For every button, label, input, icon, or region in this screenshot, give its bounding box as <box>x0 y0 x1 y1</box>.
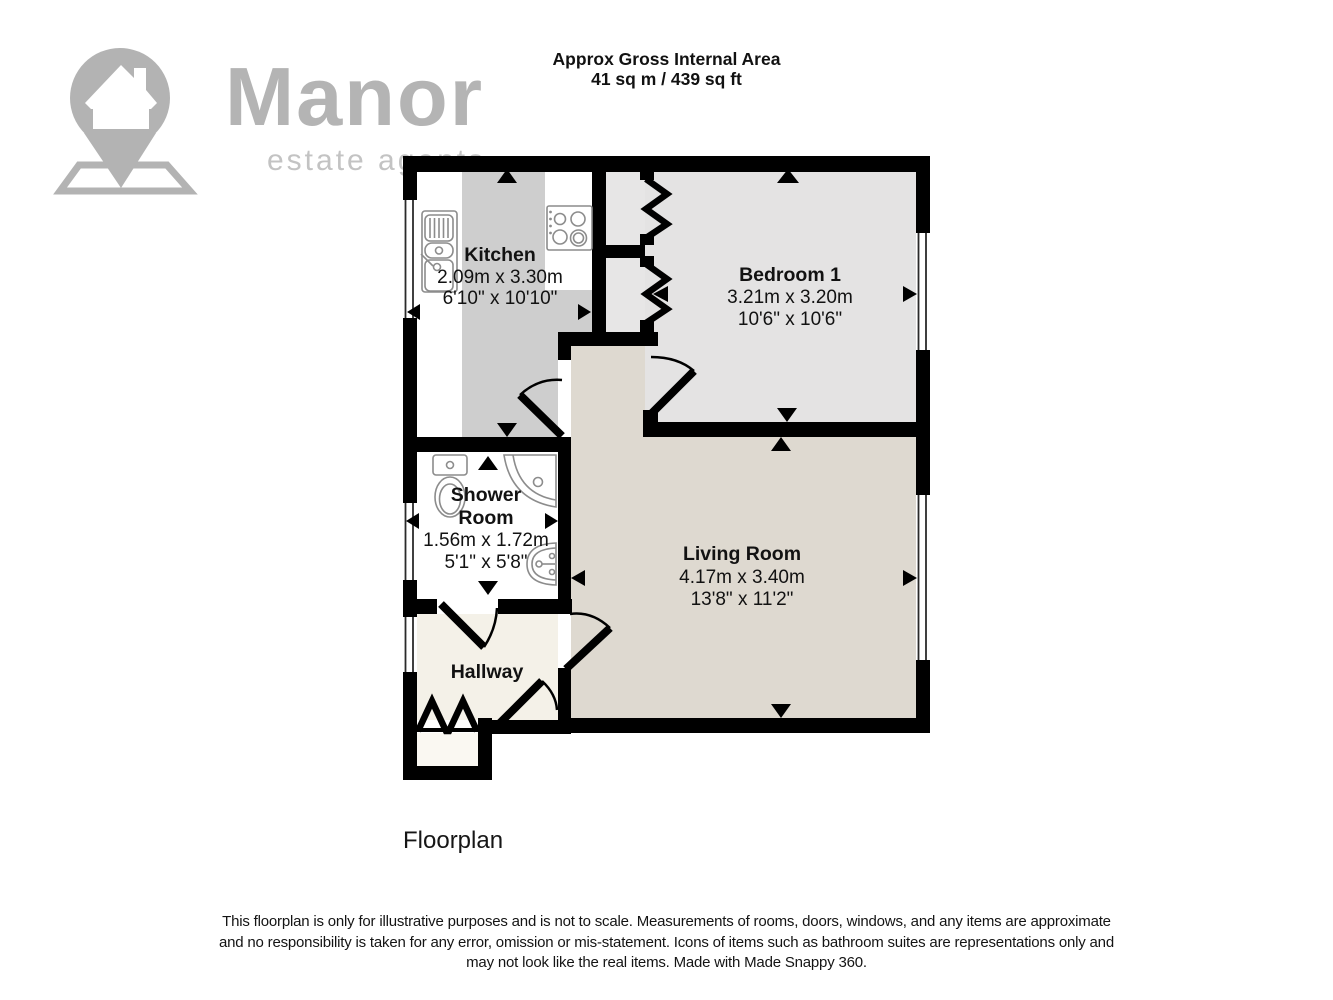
hallway-label: Hallway <box>451 661 524 683</box>
shower-window <box>403 503 417 580</box>
wall-top <box>403 156 930 172</box>
closet-1-floor <box>606 172 645 245</box>
logo-pin-icon <box>60 48 190 191</box>
wall-porch-right <box>478 718 492 766</box>
bedroom1-dim-metric: 3.21m x 3.20m <box>727 287 853 308</box>
kitchen-dim-imperial: 6'10" x 10'10" <box>443 288 558 309</box>
closet-2-floor <box>606 258 645 332</box>
shower-dim-imperial: 5'1" x 5'8" <box>444 552 527 573</box>
wall-living-bottom <box>558 718 930 733</box>
wall-shower-bottom-left <box>403 599 437 614</box>
living-label: Living Room <box>683 543 801 565</box>
kitchen-label: Kitchen <box>464 244 536 266</box>
shower-label-line1: Shower <box>451 484 522 506</box>
wall-kitchen-bottom <box>403 437 571 452</box>
floorplan-svg: Kitchen 2.09m x 3.30m 6'10" x 10'10" Bed… <box>0 0 1333 1000</box>
hallway-window <box>403 617 417 672</box>
hob-icon <box>547 206 592 250</box>
living-dim-metric: 4.17m x 3.40m <box>679 567 805 588</box>
wall-porch-bottom <box>403 766 492 780</box>
kitchen-window <box>403 200 417 318</box>
bedroom1-label: Bedroom 1 <box>739 264 841 286</box>
shower-label-line2: Room <box>458 507 513 529</box>
shower-dim-metric: 1.56m x 1.72m <box>423 530 549 551</box>
wall-shower-right <box>558 437 571 614</box>
wall-closet-bottom <box>558 332 658 346</box>
wall-bedroom-bottom <box>645 422 916 437</box>
bedroom-window <box>916 233 930 350</box>
kitchen-dim-metric: 2.09m x 3.30m <box>437 267 563 288</box>
porch-floor <box>417 733 478 766</box>
living-window <box>916 495 930 660</box>
wall-stub-kitchen-door <box>558 346 571 360</box>
living-dim-imperial: 13'8" x 11'2" <box>691 589 794 610</box>
bedroom1-dim-imperial: 10'6" x 10'6" <box>738 309 842 330</box>
wall-shower-bottom-right <box>498 599 572 614</box>
wall-closet-divider <box>592 245 645 258</box>
